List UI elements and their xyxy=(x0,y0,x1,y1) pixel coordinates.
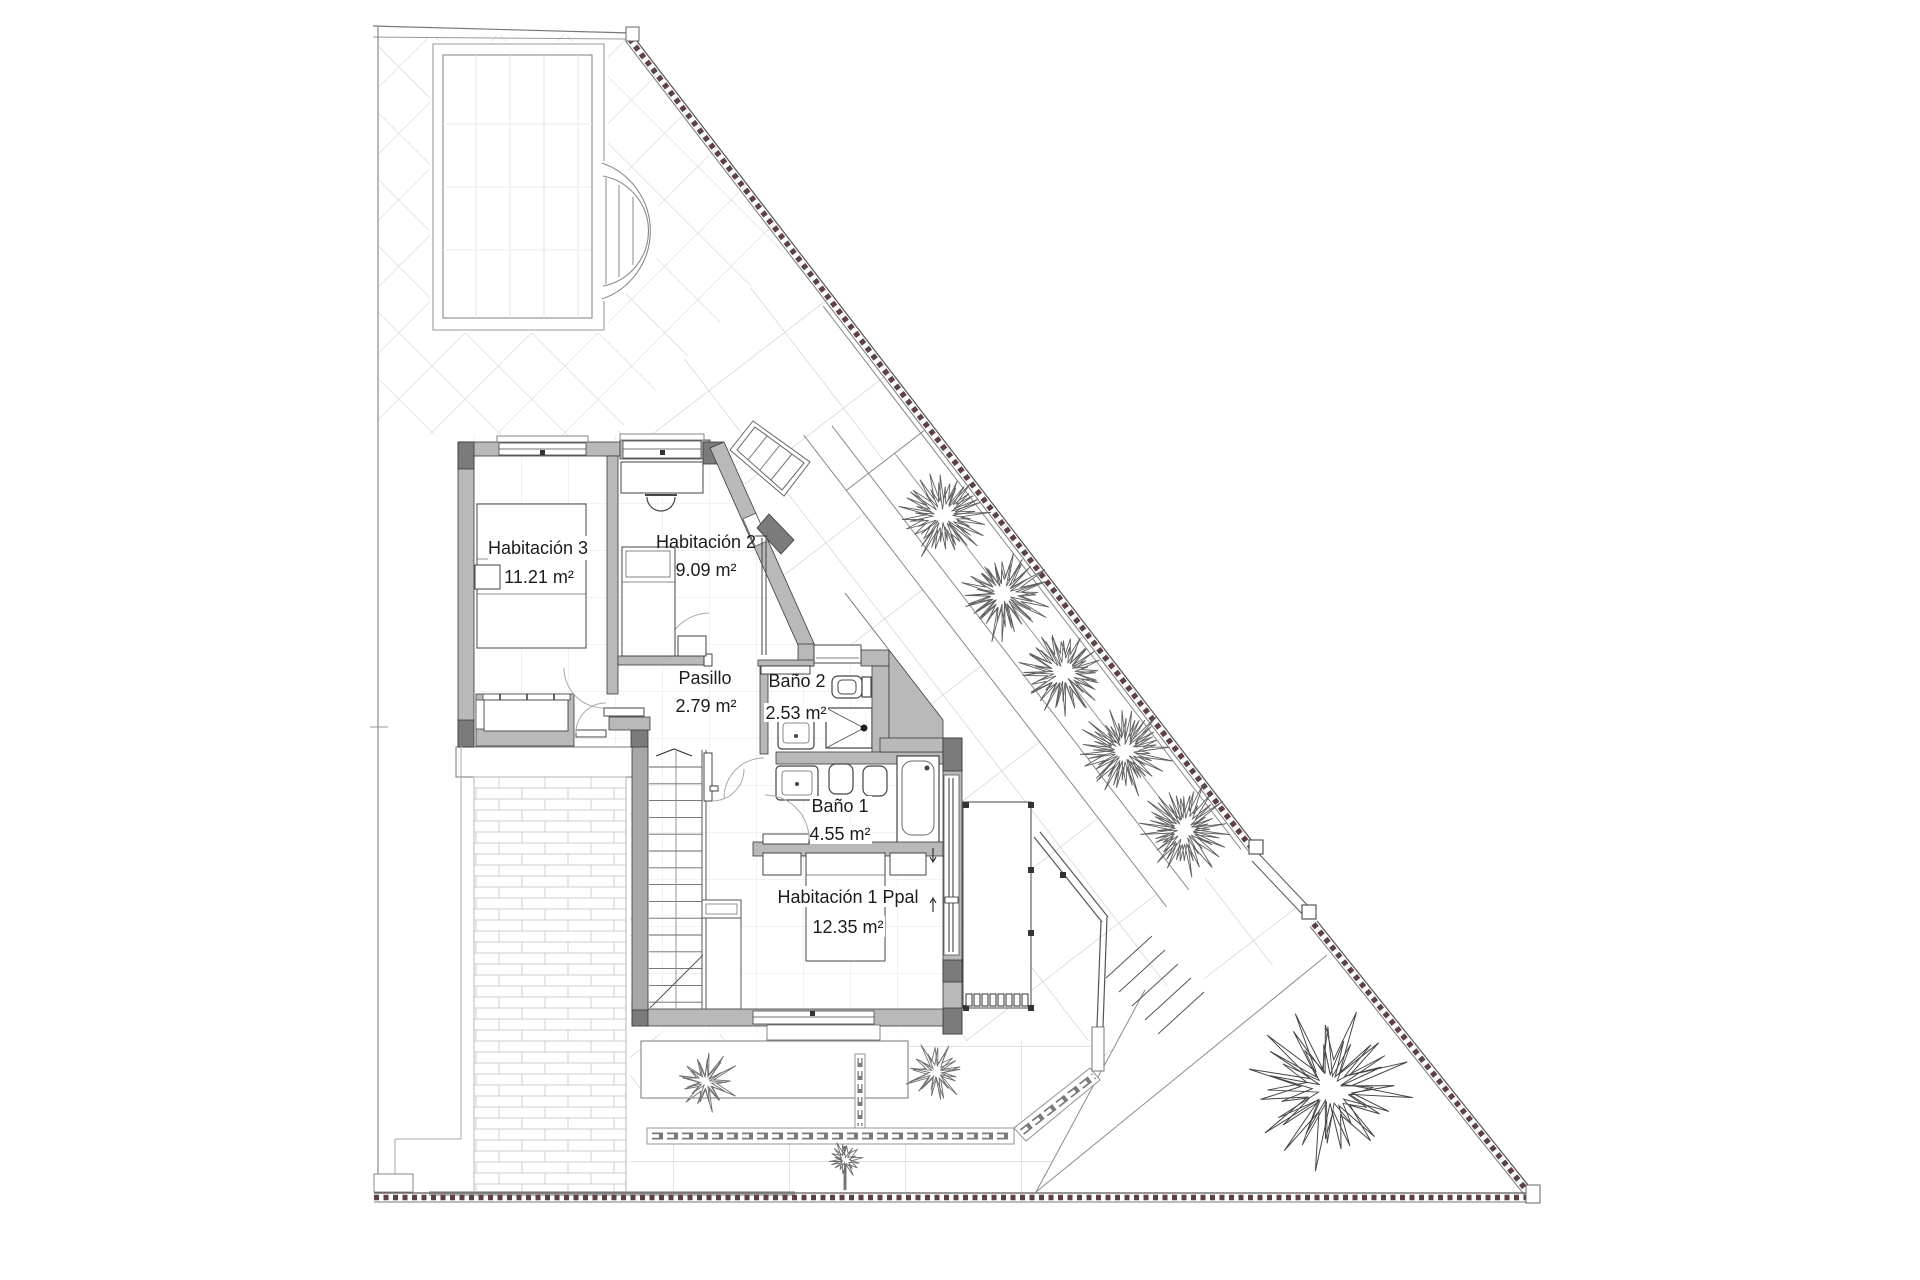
svg-text:11.21 m²: 11.21 m² xyxy=(504,567,574,587)
svg-text:2.79 m²: 2.79 m² xyxy=(675,696,736,716)
svg-text:Baño 1: Baño 1 xyxy=(811,796,868,816)
svg-text:Pasillo: Pasillo xyxy=(678,668,731,688)
svg-text:Habitación 1 Ppal: Habitación 1 Ppal xyxy=(777,887,918,907)
svg-text:9.09 m²: 9.09 m² xyxy=(675,560,736,580)
svg-text:Baño 2: Baño 2 xyxy=(768,671,825,691)
svg-text:Habitación 2: Habitación 2 xyxy=(656,532,756,552)
svg-text:Habitación 3: Habitación 3 xyxy=(488,538,588,558)
svg-text:4.55 m²: 4.55 m² xyxy=(809,824,870,844)
svg-text:12.35 m²: 12.35 m² xyxy=(812,917,883,937)
svg-text:2.53 m²: 2.53 m² xyxy=(765,703,826,723)
